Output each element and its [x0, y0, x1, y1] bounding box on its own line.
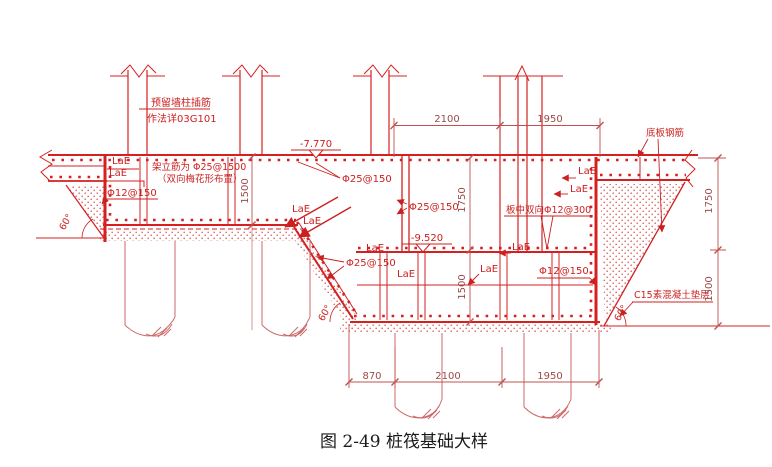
label-d25-150-wall: Φ25@150: [409, 202, 459, 213]
note-bedding-layer: C15素混凝土垫层: [634, 289, 710, 301]
label-lae-pit-right-upper: LaE: [512, 242, 530, 253]
elevation-triangle-icon: [416, 244, 430, 252]
column-break-icon: [121, 65, 156, 77]
label-d12-150-left: Φ12@150: [107, 188, 157, 199]
dim-left-thickness-1500: 1500: [240, 178, 251, 203]
label-d12-150-pit: Φ12@150: [539, 266, 589, 277]
note-mid-slab-bars: 板中双向Φ12@300: [506, 204, 591, 216]
dim-right-1750: 1750: [704, 188, 715, 213]
foundation-detail-drawing: 预留墙柱插筋 作法详03G101 -7.770 -9.520 架立筋为 Φ25@…: [0, 0, 772, 467]
note-reserved-dowels-line1: 预留墙柱插筋: [151, 96, 211, 109]
label-lae-pit-left-upper: LaE: [366, 243, 384, 254]
dim-bottom-2100: 2100: [435, 371, 460, 382]
note-stand-bars-line1: 架立筋为 Φ25@1500: [152, 161, 246, 173]
label-d25-150-slope: Φ25@150: [346, 258, 396, 269]
dim-bottom-1950: 1950: [537, 371, 562, 382]
top-dim-line: [391, 118, 604, 157]
columns: [110, 65, 563, 251]
label-lae-right-slab-upper: LaE: [578, 166, 596, 177]
pile-1: [125, 241, 175, 337]
label-lae-pit-left-lower: LaE: [397, 269, 415, 280]
right-dim-line: [698, 155, 726, 330]
label-lae-right-slab-lower: LaE: [570, 184, 588, 195]
note-stand-bars-line2: （双向梅花形布置）: [157, 173, 243, 185]
angle-arc-left: [82, 219, 93, 238]
elevation-lower-value: -9.520: [411, 233, 443, 244]
label-d25-150-top: Φ25@150: [342, 174, 392, 185]
dim-right-1500: 1500: [704, 276, 715, 301]
note-bottom-slab-rebar: 底板钢筋: [646, 127, 684, 139]
note-reserved-dowels-line2: 作法详03G101: [147, 112, 217, 125]
pile-2: [262, 241, 310, 337]
label-lae-pit-right-lower: LaE: [480, 264, 498, 275]
angle-label-left: 60°: [57, 212, 75, 232]
dim-bottom-870: 870: [362, 371, 381, 382]
column-4-wall: [483, 66, 563, 251]
column-2: [222, 65, 280, 155]
left-bedding-layer: [100, 230, 306, 241]
column-break-icon: [364, 65, 399, 77]
angle-label-mid: 60°: [316, 303, 334, 323]
pit-bedding-layer: [340, 323, 612, 332]
pile-raft-foundation-detail-figure: 预留墙柱插筋 作法详03G101 -7.770 -9.520 架立筋为 Φ25@…: [0, 0, 772, 467]
dim-mid-1750: 1750: [457, 187, 468, 212]
label-lae-left-bottom: LaE: [109, 168, 127, 179]
column-1: [110, 65, 165, 155]
label-lae-step-bottom: LaE: [303, 216, 321, 227]
dim-top-1950: 1950: [537, 114, 562, 125]
dim-mid-1500: 1500: [457, 274, 468, 299]
bottom-dim-line: [346, 324, 603, 388]
column-break-icon: [233, 65, 268, 77]
elevation-upper-value: -7.770: [300, 139, 332, 150]
label-lae-left-top: LaE: [112, 156, 130, 167]
dim-top-2100: 2100: [434, 114, 459, 125]
column-3: [353, 65, 407, 155]
label-lae-step-top: LaE: [292, 204, 310, 215]
figure-caption: 图 2-49 桩筏基础大样: [320, 432, 488, 452]
